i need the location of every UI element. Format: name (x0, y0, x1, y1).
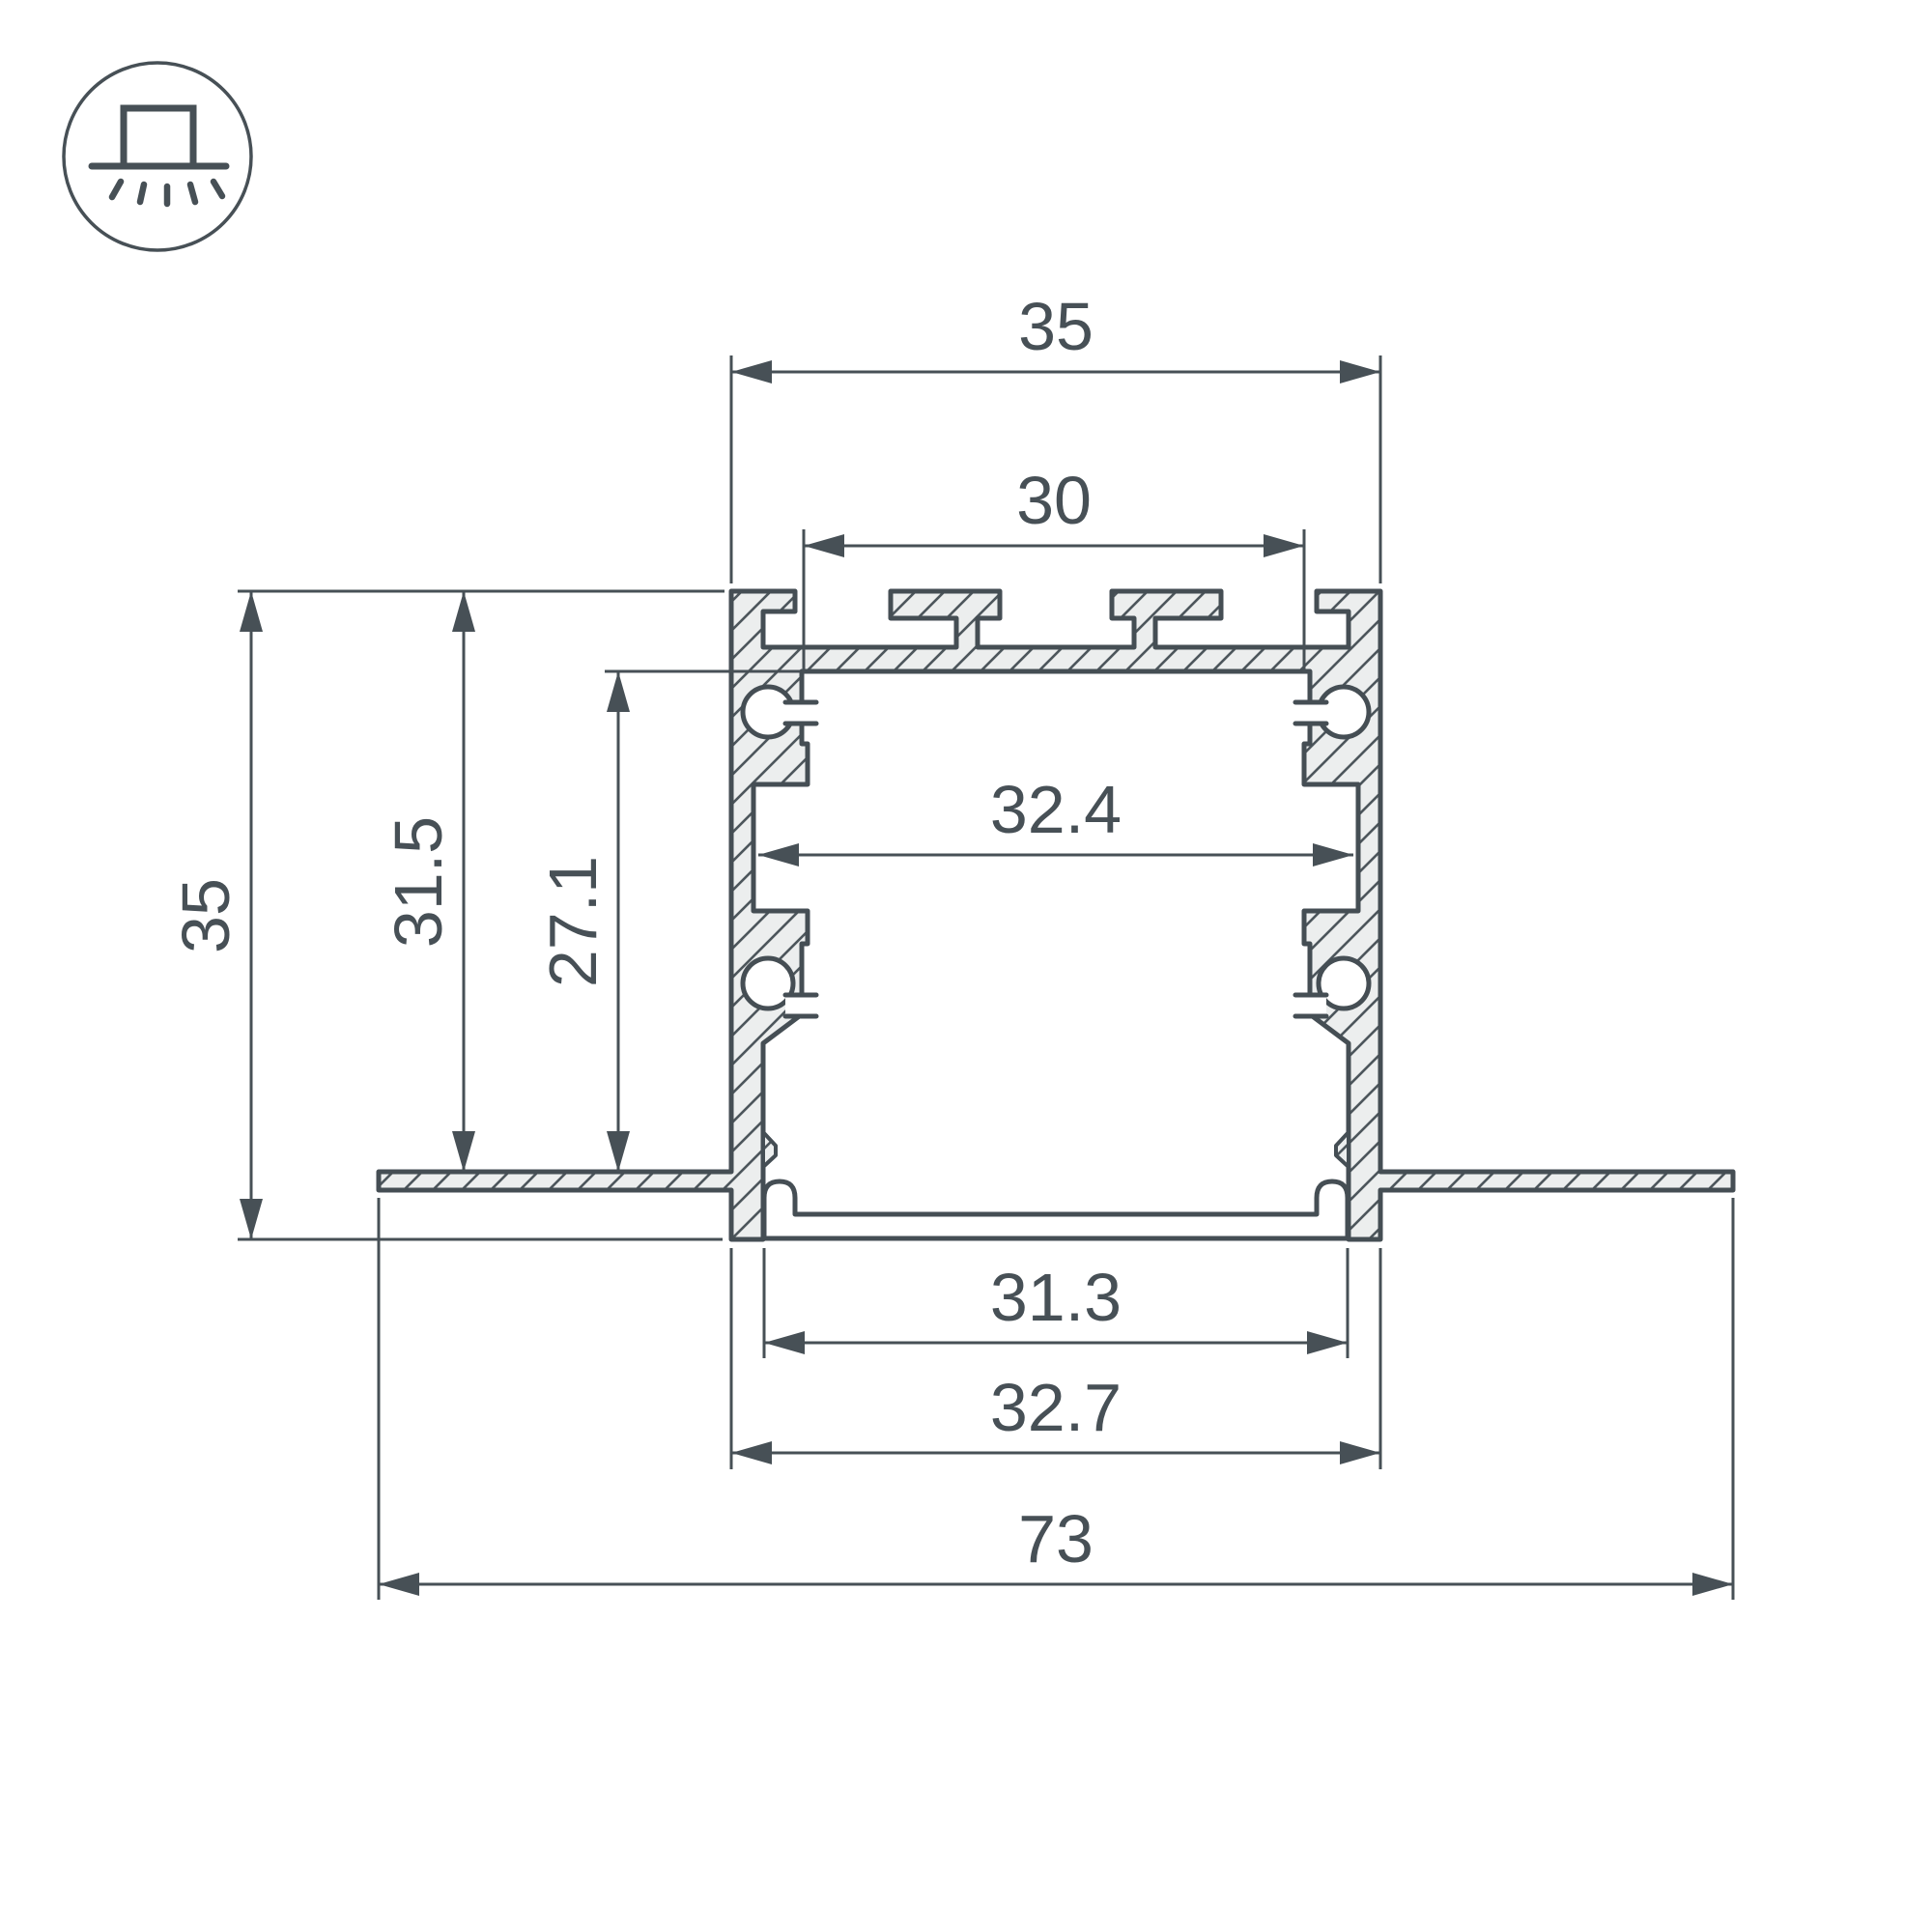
technical-drawing-page: 35 30 32.4 31.3 (0, 0, 1932, 1932)
dim-label-bottom-inner-width: 31.3 (990, 1260, 1122, 1335)
dim-label-overall-height: 35 (168, 878, 243, 953)
dim-label-top-slot-width: 30 (1016, 463, 1092, 538)
dim-label-cavity-height: 27.1 (535, 856, 611, 987)
dim-label-inner-width: 32.4 (990, 772, 1122, 847)
drawing-background (0, 0, 1932, 1932)
dim-label-recess-height: 31.5 (381, 816, 456, 948)
technical-drawing-canvas: 35 30 32.4 31.3 (0, 0, 1932, 1932)
dim-label-top-width: 35 (1018, 289, 1094, 364)
dim-label-overall-width: 73 (1018, 1501, 1094, 1577)
dim-label-bottom-width: 32.7 (990, 1370, 1122, 1445)
